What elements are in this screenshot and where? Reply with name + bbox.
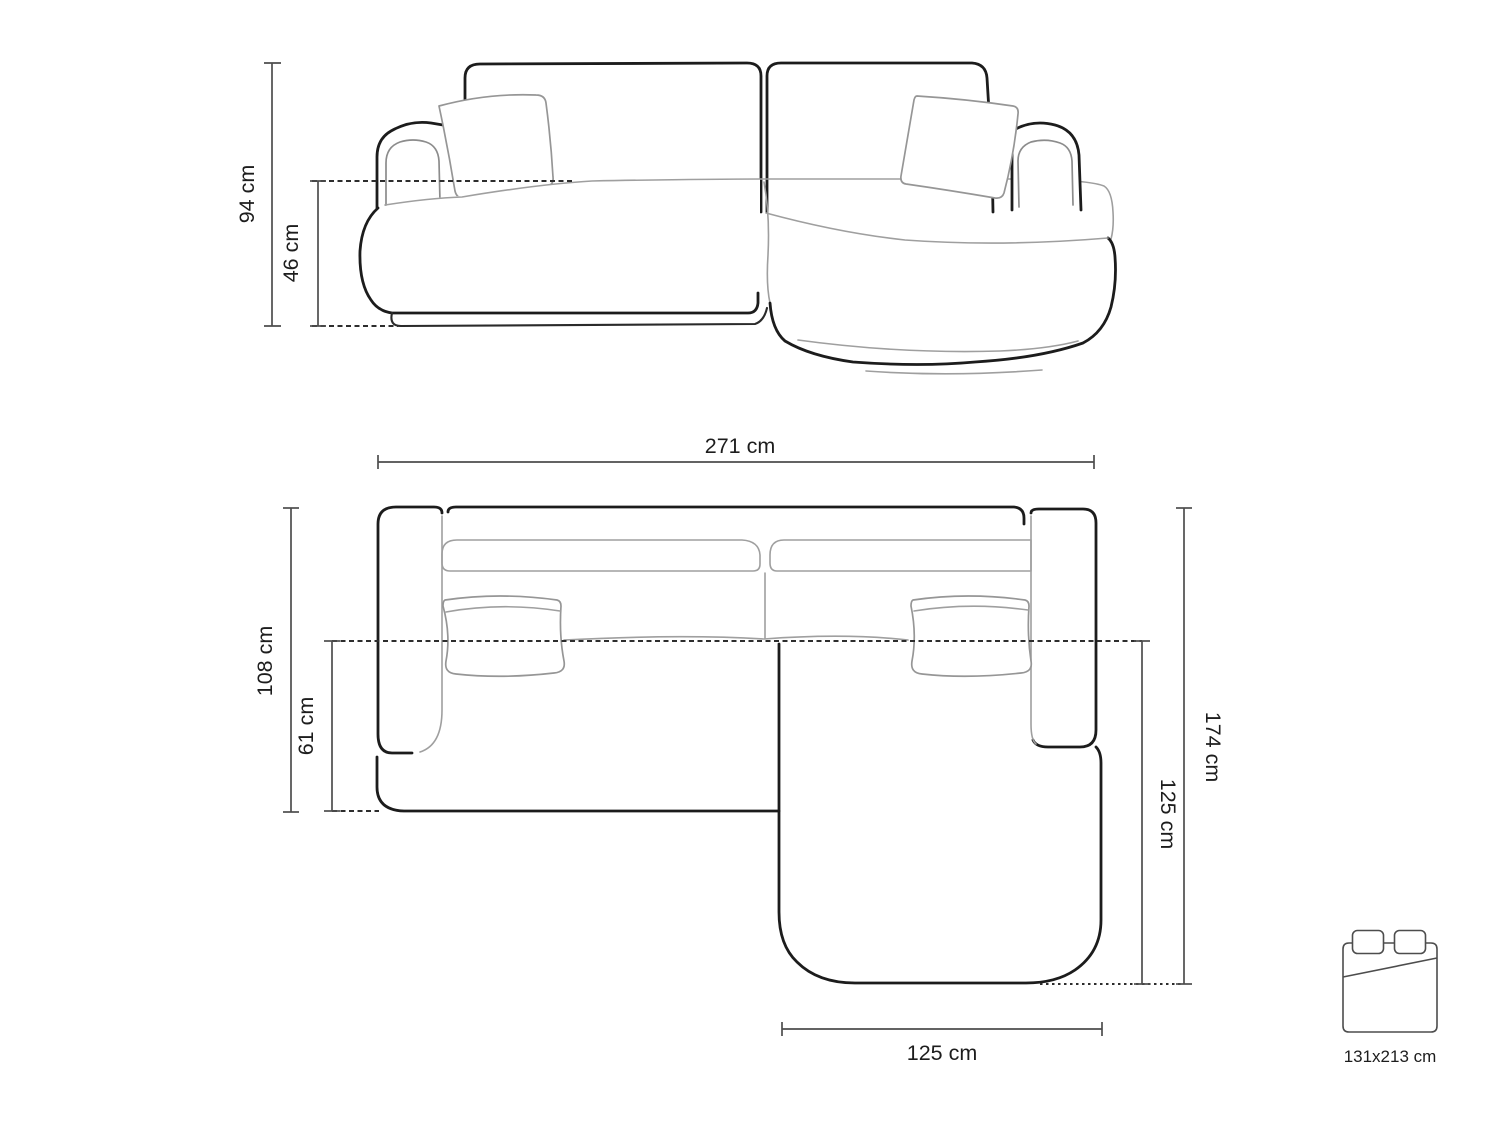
height-dimension-line bbox=[264, 63, 281, 326]
chaise-length-dimension-line bbox=[1134, 641, 1150, 984]
throw-pillow-right-front bbox=[901, 96, 1018, 198]
depth-label: 108 cm bbox=[253, 626, 277, 697]
seat-height-dimension-line bbox=[310, 181, 326, 326]
bed-pillow-right bbox=[1395, 931, 1426, 954]
throw-pillow-right-top bbox=[911, 596, 1031, 676]
chaise-plinth-edge bbox=[866, 370, 1042, 374]
footprint-fill bbox=[379, 507, 1099, 982]
sofa-top-view bbox=[377, 507, 1101, 983]
depth-dimension-line bbox=[283, 508, 299, 812]
seat-height-label: 46 cm bbox=[279, 224, 303, 283]
armrest-right-top-fill bbox=[1031, 509, 1096, 747]
bed-frame bbox=[1343, 943, 1437, 1032]
chaise-length-label: 125 cm bbox=[1156, 779, 1180, 850]
chaise-width-dimension-line bbox=[782, 1022, 1102, 1036]
sleeping-area-size-label: 131x213 cm bbox=[1344, 1047, 1437, 1066]
length-label: 174 cm bbox=[1201, 712, 1225, 783]
sleeping-area-info: 131x213 cm bbox=[1343, 931, 1437, 1067]
armrest-left-top-fill bbox=[378, 507, 442, 753]
seat-depth-label: 61 cm bbox=[294, 697, 318, 756]
bed-pillow-left bbox=[1353, 931, 1384, 954]
length-dimension-line bbox=[1176, 508, 1192, 984]
throw-pillow-left-top bbox=[443, 596, 564, 676]
throw-pillow-left-front bbox=[439, 95, 553, 198]
diagram-canvas: 94 cm 46 cm bbox=[0, 0, 1500, 1125]
bed-icon bbox=[1343, 931, 1437, 1033]
sofa-front-view bbox=[360, 63, 1116, 374]
height-label: 94 cm bbox=[235, 165, 259, 224]
seat-depth-dimension-line bbox=[324, 641, 340, 811]
chaise-width-label: 125 cm bbox=[907, 1041, 978, 1065]
width-label: 271 cm bbox=[705, 434, 776, 458]
sofa-dimension-drawing: 94 cm 46 cm bbox=[0, 0, 1500, 1125]
